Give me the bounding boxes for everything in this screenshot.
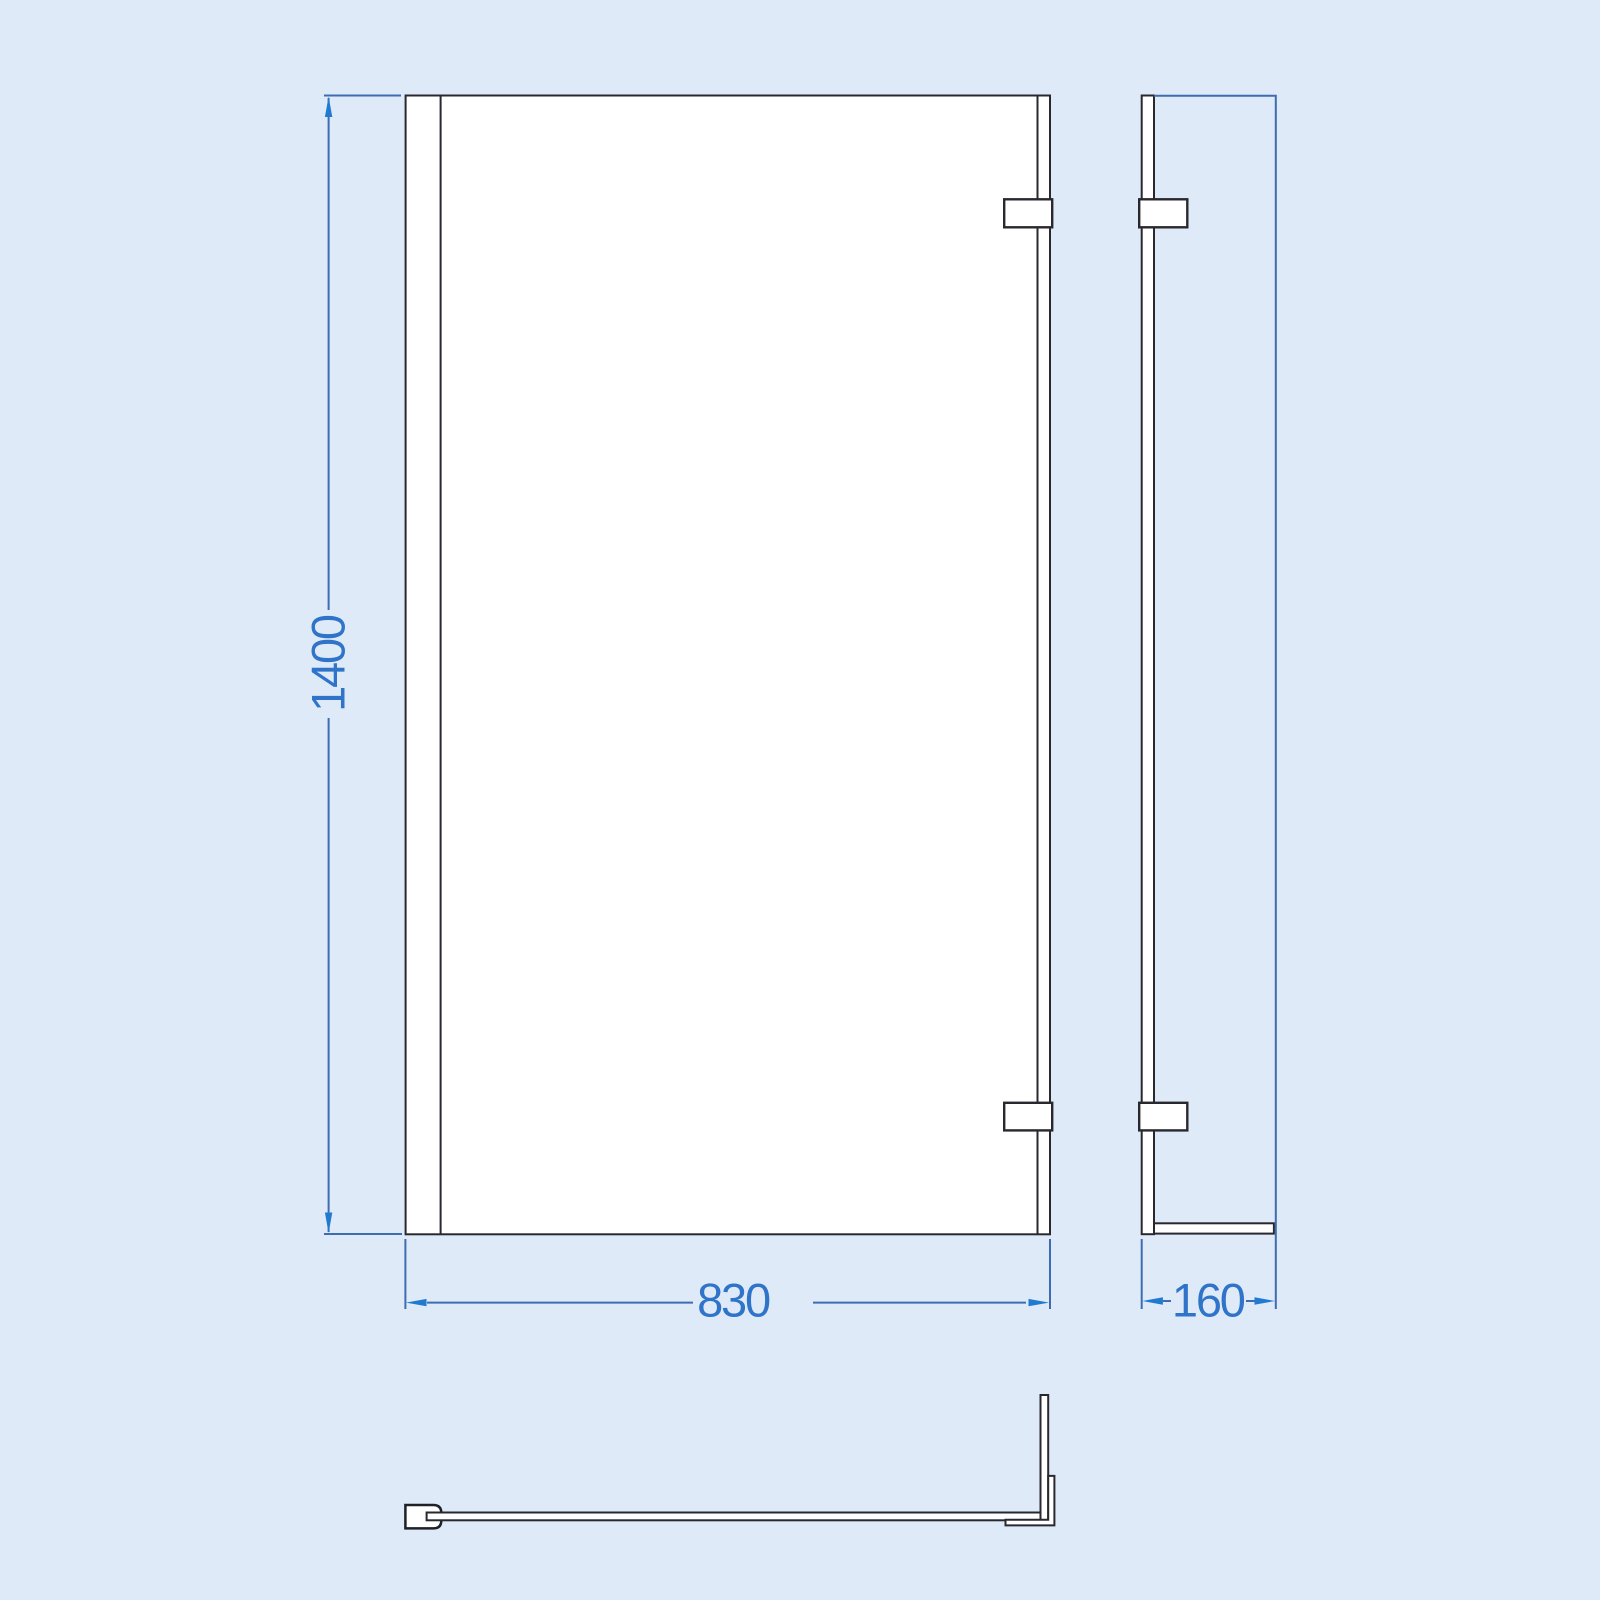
svg-text:830: 830 [697,1274,770,1327]
svg-text:1400: 1400 [301,615,354,712]
svg-text:160: 160 [1172,1273,1245,1326]
